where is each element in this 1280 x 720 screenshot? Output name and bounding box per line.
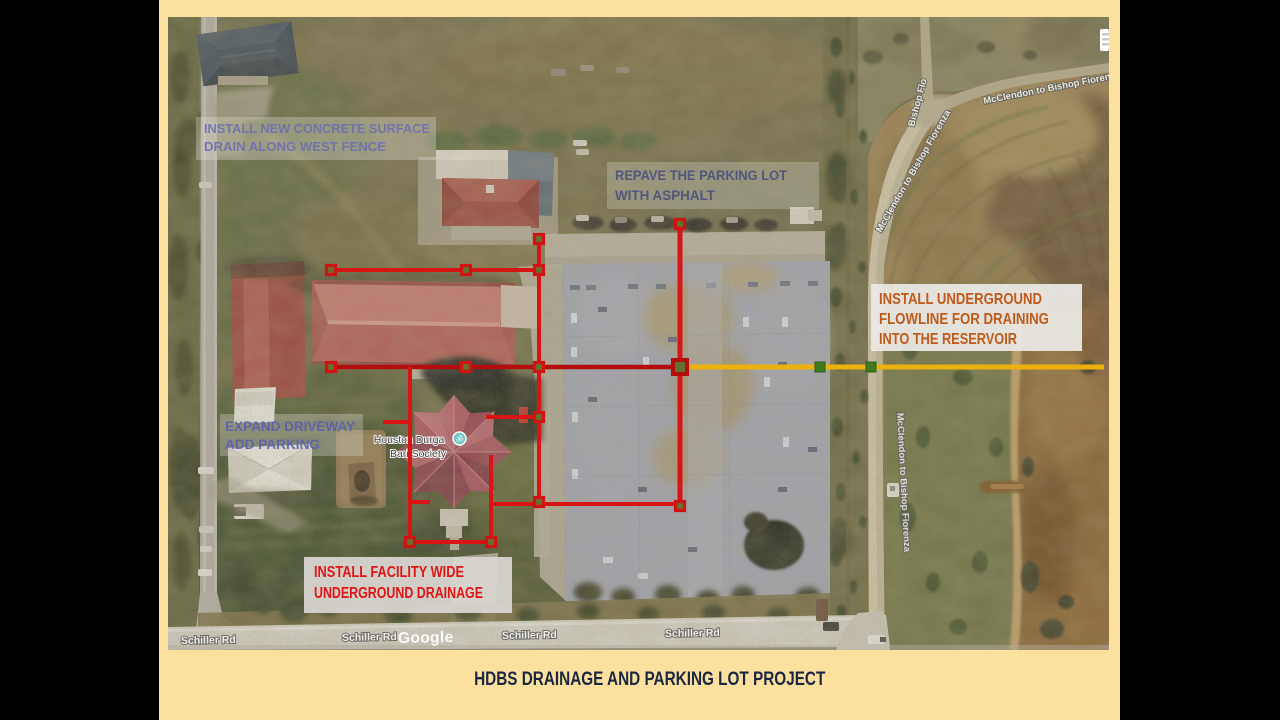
svg-text:INSTALL UNDERGROUND: INSTALL UNDERGROUND: [879, 291, 1042, 308]
svg-text:Schiller Rd: Schiller Rd: [342, 631, 397, 644]
svg-text:INSTALL FACILITY WIDE: INSTALL FACILITY WIDE: [314, 564, 464, 581]
svg-text:WITH ASPHALT: WITH ASPHALT: [615, 188, 716, 203]
svg-text:FLOWLINE FOR DRAINING: FLOWLINE FOR DRAINING: [879, 311, 1049, 328]
svg-text:REPAVE THE PARKING LOT: REPAVE THE PARKING LOT: [615, 168, 788, 183]
svg-text:Schiller Rd: Schiller Rd: [502, 629, 557, 642]
svg-text:Google: Google: [398, 629, 454, 647]
svg-text:INTO THE RESERVOIR: INTO THE RESERVOIR: [879, 331, 1017, 348]
svg-text:Schiller Rd: Schiller Rd: [181, 634, 236, 647]
svg-text:EXPAND DRIVEWAY: EXPAND DRIVEWAY: [225, 418, 356, 434]
svg-text:ADD PARKING: ADD PARKING: [225, 436, 320, 452]
svg-text:ॐ: ॐ: [456, 435, 463, 444]
svg-text:Schiller Rd: Schiller Rd: [665, 627, 720, 640]
svg-text:UNDERGROUND DRAINAGE: UNDERGROUND DRAINAGE: [314, 585, 483, 602]
svg-text:INSTALL NEW CONCRETE SURFACE: INSTALL NEW CONCRETE SURFACE: [204, 121, 430, 136]
svg-text:DRAIN ALONG WEST FENCE: DRAIN ALONG WEST FENCE: [204, 139, 386, 154]
svg-text:Bari Society: Bari Society: [390, 448, 447, 460]
